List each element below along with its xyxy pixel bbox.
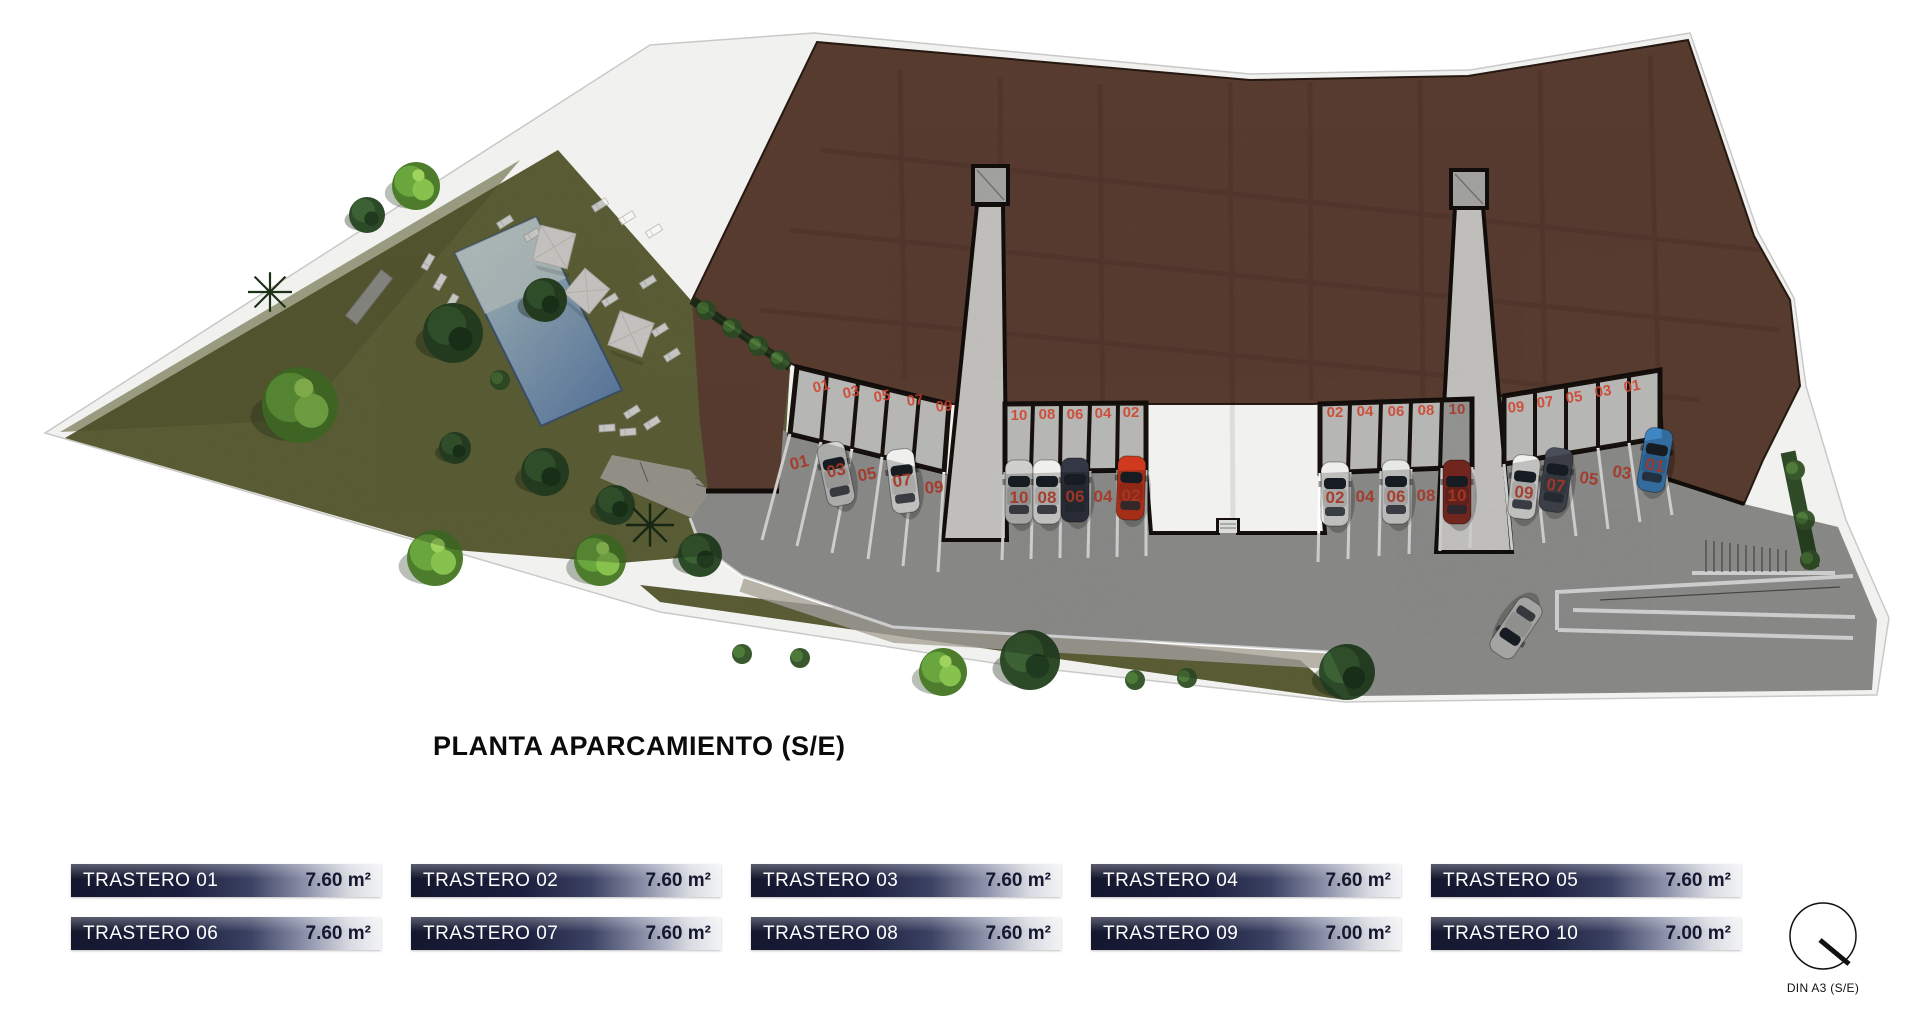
storage-area: 7.60 m² bbox=[986, 923, 1061, 945]
page-title: PLANTA APARCAMIENTO (S/E) bbox=[433, 731, 846, 762]
storage-number: 03 bbox=[1594, 382, 1613, 401]
storage-number: 04 bbox=[1095, 405, 1112, 422]
storage-number: 07 bbox=[1536, 393, 1555, 412]
storage-area: 7.00 m² bbox=[1326, 923, 1401, 945]
storage-label: TRASTERO 03 bbox=[751, 870, 898, 892]
storage-number: 10 bbox=[1011, 407, 1028, 424]
storage-number: 08 bbox=[1039, 406, 1056, 423]
storage-area: 7.00 m² bbox=[1666, 923, 1741, 945]
storage-number: 04 bbox=[1357, 403, 1374, 420]
storage-label: TRASTERO 08 bbox=[751, 923, 898, 945]
legend-item: TRASTERO 017.60 m² bbox=[71, 864, 381, 897]
storage-label: TRASTERO 06 bbox=[71, 923, 218, 945]
storage-number: 06 bbox=[1388, 403, 1405, 420]
storage-number: 01 bbox=[1622, 377, 1641, 397]
site-plan-page: 01 03 05 07 09 10 08 06 04 02 02 04 06 0… bbox=[0, 0, 1920, 1024]
legend-item: TRASTERO 057.60 m² bbox=[1431, 864, 1741, 897]
legend-item: TRASTERO 107.00 m² bbox=[1431, 917, 1741, 950]
storage-area: 7.60 m² bbox=[1666, 870, 1741, 892]
legend-item: TRASTERO 037.60 m² bbox=[751, 864, 1061, 897]
storage-number: 05 bbox=[1565, 388, 1584, 407]
storage-number: 08 bbox=[1418, 402, 1435, 419]
legend-item: TRASTERO 077.60 m² bbox=[411, 917, 721, 950]
storage-number: 05 bbox=[872, 387, 891, 407]
storage-number: 02 bbox=[1123, 404, 1140, 421]
storage-area: 7.60 m² bbox=[306, 923, 381, 945]
legend-item: TRASTERO 067.60 m² bbox=[71, 917, 381, 950]
sheet-format-label: DIN A3 (S/E) bbox=[1773, 981, 1873, 995]
storage-number: 02 bbox=[1327, 404, 1344, 421]
storage-area: 7.60 m² bbox=[986, 870, 1061, 892]
storage-area: 7.60 m² bbox=[306, 870, 381, 892]
storage-area: 7.60 m² bbox=[1326, 870, 1401, 892]
storage-area: 7.60 m² bbox=[646, 923, 721, 945]
storage-label: TRASTERO 01 bbox=[71, 870, 218, 892]
storage-label: TRASTERO 05 bbox=[1431, 870, 1578, 892]
courtyard-stair bbox=[1219, 520, 1237, 533]
storage-number: 09 bbox=[1507, 398, 1525, 416]
storage-label: TRASTERO 04 bbox=[1091, 870, 1238, 892]
sheet-format-stamp: DIN A3 (S/E) bbox=[1773, 898, 1873, 995]
legend-item: TRASTERO 027.60 m² bbox=[411, 864, 721, 897]
storage-number: 03 bbox=[841, 382, 861, 402]
legend-item: TRASTERO 097.00 m² bbox=[1091, 917, 1401, 950]
storage-number: 06 bbox=[1067, 406, 1084, 423]
storage-label: TRASTERO 10 bbox=[1431, 923, 1578, 945]
storage-label: TRASTERO 07 bbox=[411, 923, 558, 945]
legend-item: TRASTERO 087.60 m² bbox=[751, 917, 1061, 950]
storage-label: TRASTERO 09 bbox=[1091, 923, 1238, 945]
storage-area: 7.60 m² bbox=[646, 870, 721, 892]
legend-item: TRASTERO 047.60 m² bbox=[1091, 864, 1401, 897]
storage-label: TRASTERO 02 bbox=[411, 870, 558, 892]
north-compass-icon bbox=[1773, 898, 1873, 970]
